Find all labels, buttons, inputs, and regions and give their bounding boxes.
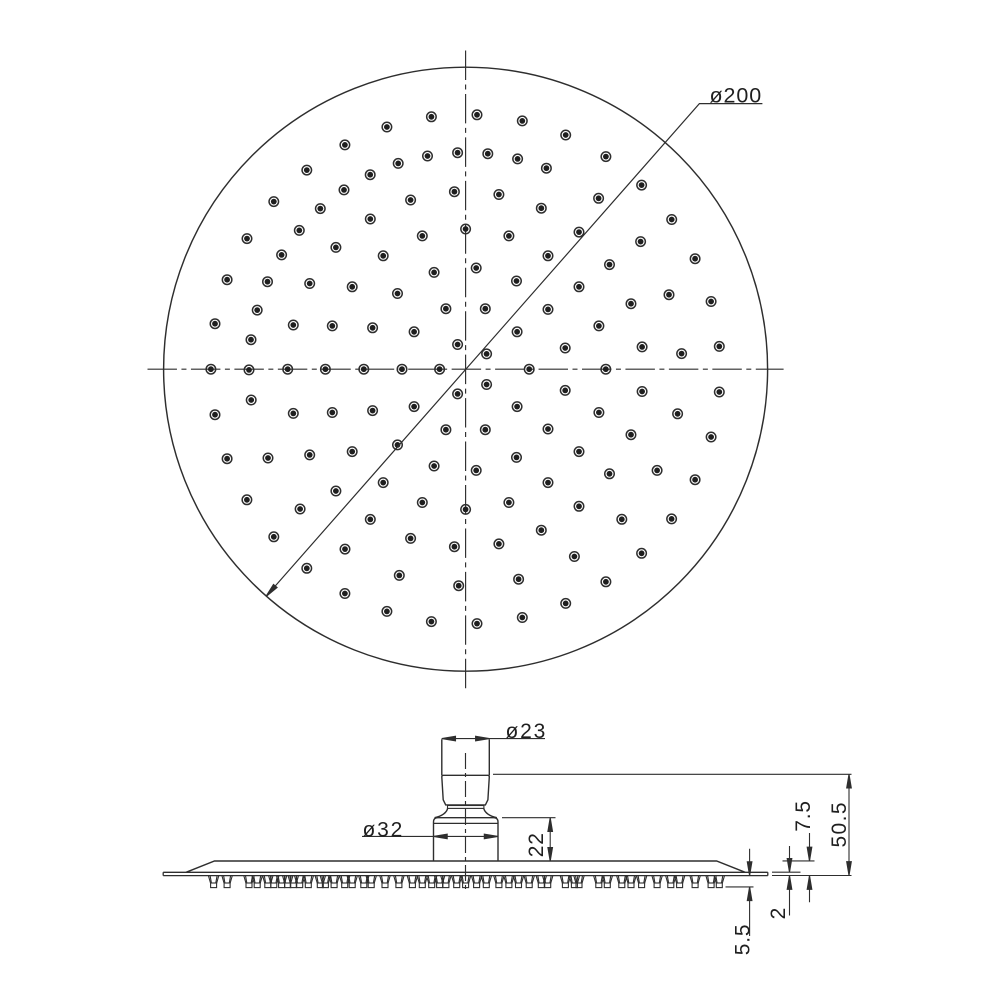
svg-text:22: 22 (525, 832, 548, 857)
svg-text:5.5: 5.5 (731, 924, 754, 956)
svg-text:50.5: 50.5 (828, 801, 851, 847)
svg-text:7.5: 7.5 (792, 800, 815, 832)
svg-text:ø23: ø23 (506, 720, 548, 743)
svg-text:2: 2 (767, 908, 790, 920)
svg-text:ø200: ø200 (710, 83, 763, 107)
svg-text:ø32: ø32 (363, 819, 405, 842)
